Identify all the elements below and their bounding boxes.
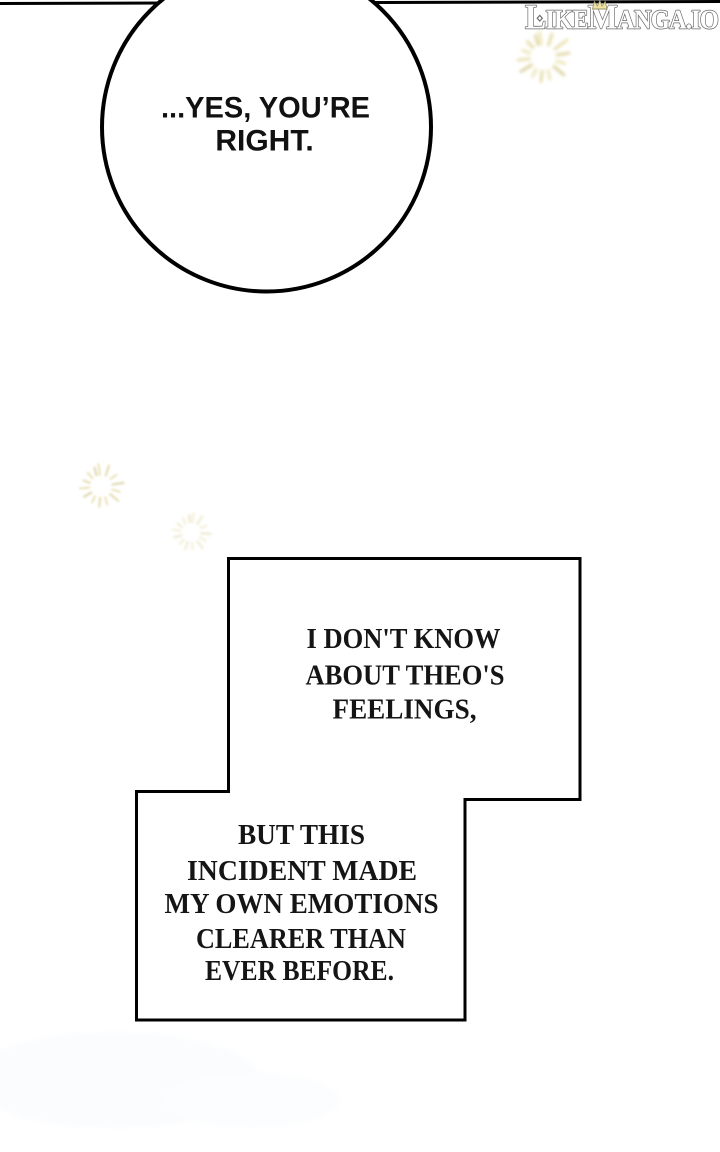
svg-text:RIGHT.: RIGHT. — [215, 125, 313, 158]
svg-text:LIKEMANGA.IO: LIKEMANGA.IO — [525, 0, 718, 37]
svg-text:CLEARER THAN: CLEARER THAN — [196, 924, 406, 955]
svg-text:EVER BEFORE.: EVER BEFORE. — [205, 956, 394, 987]
svg-text:ABOUT THEO'S: ABOUT THEO'S — [306, 661, 505, 692]
svg-text:BUT THIS: BUT THIS — [238, 820, 365, 851]
svg-text:INCIDENT MADE: INCIDENT MADE — [187, 856, 417, 887]
svg-text:FEELINGS,: FEELINGS, — [333, 695, 477, 726]
svg-text:...YES, YOU’RE: ...YES, YOU’RE — [161, 92, 370, 125]
svg-text:MY OWN EMOTIONS: MY OWN EMOTIONS — [165, 889, 439, 920]
svg-text:I DON'T KNOW: I DON'T KNOW — [307, 624, 501, 655]
